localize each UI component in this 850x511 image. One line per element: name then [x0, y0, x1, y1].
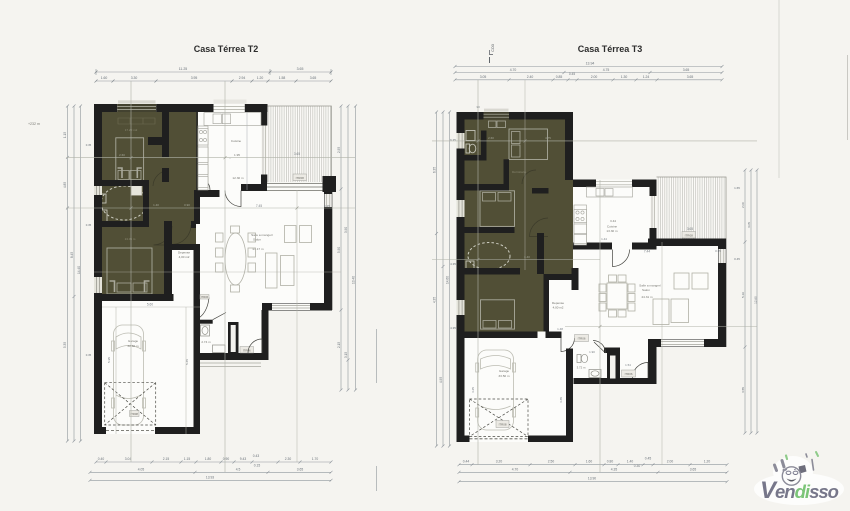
svg-text:13.90: 13.90	[588, 477, 596, 481]
svg-text:5.16: 5.16	[741, 292, 745, 298]
svg-text:0.40: 0.40	[98, 457, 105, 461]
svg-text:0.35: 0.35	[86, 223, 92, 227]
svg-text:ITR08: ITR08	[499, 423, 507, 427]
svg-text:1.65: 1.65	[734, 186, 740, 190]
svg-text:3.65: 3.65	[310, 76, 317, 80]
svg-text:ITR06: ITR06	[243, 349, 251, 353]
svg-text:44.31 m: 44.31 m	[641, 295, 653, 299]
svg-text:0.45: 0.45	[734, 257, 740, 261]
svg-text:1.20: 1.20	[257, 76, 264, 80]
svg-text:1.60: 1.60	[101, 76, 108, 80]
svg-text:3.04: 3.04	[125, 457, 132, 461]
svg-text:3.95: 3.95	[191, 76, 198, 80]
svg-text:14.40: 14.40	[77, 266, 81, 274]
svg-text:33.50 m: 33.50 m	[498, 374, 510, 378]
svg-text:Casa Térrea T2: Casa Térrea T2	[194, 44, 259, 54]
svg-text:5.60: 5.60	[147, 303, 153, 307]
svg-text:4.95: 4.95	[439, 377, 443, 383]
svg-text:4.35: 4.35	[559, 397, 563, 403]
svg-text:1.20: 1.20	[704, 460, 711, 464]
svg-text:6.35: 6.35	[433, 167, 437, 173]
svg-text:3.65: 3.65	[687, 227, 693, 231]
svg-text:Cuisine: Cuisine	[607, 225, 618, 229]
svg-text:4.05: 4.05	[138, 467, 145, 471]
svg-text:5.45: 5.45	[185, 359, 189, 365]
svg-text:0.15: 0.15	[254, 464, 261, 468]
svg-text:Garage: Garage	[128, 339, 139, 343]
svg-text:ITR08: ITR08	[131, 412, 139, 416]
svg-text:4,00 m2: 4,00 m2	[553, 306, 564, 310]
svg-text:0.44: 0.44	[463, 460, 470, 464]
svg-text:4.70: 4.70	[510, 68, 517, 72]
svg-text:0.35: 0.35	[86, 353, 92, 357]
svg-text:3.30: 3.30	[131, 76, 138, 80]
svg-text:0.45: 0.45	[645, 457, 652, 461]
svg-text:+232 m: +232 m	[28, 122, 40, 126]
svg-text:2.00: 2.00	[591, 75, 598, 79]
svg-text:Garage: Garage	[499, 369, 510, 373]
svg-text:3.55: 3.55	[741, 387, 745, 393]
svg-text:Salle a manger/: Salle a manger/	[251, 233, 273, 237]
svg-text:1.54: 1.54	[625, 363, 631, 367]
svg-text:Depense: Depense	[552, 301, 564, 305]
svg-text:3.65: 3.65	[294, 152, 300, 156]
svg-text:12.30 m: 12.30 m	[232, 176, 244, 180]
svg-text:4.85: 4.85	[63, 182, 67, 188]
svg-text:2.40: 2.40	[527, 75, 534, 79]
svg-text:1.58: 1.58	[279, 76, 286, 80]
svg-text:4.75: 4.75	[603, 68, 610, 72]
svg-text:8.45: 8.45	[70, 252, 74, 258]
svg-text:9.43: 9.43	[240, 457, 247, 461]
svg-text:2.60: 2.60	[488, 136, 494, 140]
svg-text:13.94: 13.94	[586, 62, 595, 66]
svg-text:0.35: 0.35	[715, 249, 721, 253]
svg-text:Casa Térrea T3: Casa Térrea T3	[578, 44, 643, 54]
svg-text:6.35: 6.35	[450, 138, 456, 142]
svg-text:0.43: 0.43	[253, 454, 260, 458]
svg-text:4.25: 4.25	[471, 387, 475, 393]
svg-text:ITR08: ITR08	[685, 234, 694, 238]
svg-text:Vendisso: Vendisso	[760, 477, 839, 504]
svg-text:2.74 m: 2.74 m	[201, 340, 211, 344]
svg-text:3.90: 3.90	[344, 227, 348, 233]
svg-text:4.5: 4.5	[236, 467, 241, 471]
svg-text:ITR06: ITR06	[625, 372, 633, 376]
svg-text:1.15: 1.15	[184, 457, 191, 461]
svg-text:1.24: 1.24	[643, 75, 650, 79]
svg-text:3.72 m: 3.72 m	[577, 366, 586, 370]
svg-text:2.95: 2.95	[337, 147, 341, 153]
svg-text:Dormitorio: Dormitorio	[512, 170, 526, 174]
svg-text:1.30: 1.30	[621, 75, 628, 79]
svg-text:1.80: 1.80	[205, 457, 212, 461]
svg-text:5.35: 5.35	[63, 342, 67, 348]
svg-text:Salon: Salon	[642, 288, 650, 292]
svg-text:3.15: 3.15	[344, 352, 348, 358]
svg-text:0.90: 0.90	[184, 203, 190, 207]
svg-text:2.50: 2.50	[548, 460, 555, 464]
svg-text:3.65: 3.65	[297, 67, 304, 71]
svg-text:0.35: 0.35	[86, 143, 92, 147]
svg-text:Depense: Depense	[178, 251, 190, 255]
svg-text:3.65: 3.65	[297, 467, 304, 471]
svg-text:4.75: 4.75	[545, 136, 551, 140]
svg-text:1.70: 1.70	[312, 457, 319, 461]
svg-text:Salon: Salon	[253, 238, 261, 242]
svg-text:13.05 m: 13.05 m	[125, 237, 136, 241]
svg-text:ITR06: ITR06	[201, 295, 209, 299]
svg-text:32.60 m: 32.60 m	[127, 344, 139, 348]
svg-text:1.48: 1.48	[557, 327, 563, 331]
svg-text:4.35: 4.35	[450, 326, 456, 330]
svg-text:2.15: 2.15	[163, 457, 170, 461]
svg-text:2.30: 2.30	[285, 457, 292, 461]
svg-text:2.00: 2.00	[667, 460, 674, 464]
svg-text:1.90: 1.90	[589, 350, 595, 354]
svg-text:4,00 m2: 4,00 m2	[179, 255, 190, 259]
svg-text:3.65: 3.65	[687, 75, 694, 79]
svg-text:3.05: 3.05	[480, 75, 487, 79]
svg-text:3.44: 3.44	[610, 219, 616, 223]
svg-text:4.35: 4.35	[450, 262, 456, 266]
svg-text:2.94: 2.94	[239, 76, 246, 80]
svg-text:CO3: CO3	[491, 44, 495, 52]
svg-text:1.95: 1.95	[234, 153, 240, 157]
svg-text:7.45: 7.45	[256, 204, 262, 208]
svg-text:5.95: 5.95	[107, 357, 111, 363]
svg-text:1.15: 1.15	[63, 132, 67, 138]
svg-text:2.00: 2.00	[741, 202, 745, 208]
svg-text:7.44: 7.44	[644, 250, 650, 254]
svg-text:5.90: 5.90	[337, 247, 341, 253]
svg-text:0.85: 0.85	[556, 75, 563, 79]
svg-text:0.30: 0.30	[634, 464, 641, 468]
svg-text:3.05: 3.05	[747, 222, 751, 228]
svg-text:0.90: 0.90	[223, 457, 230, 461]
svg-text:3.65: 3.65	[683, 68, 690, 72]
svg-text:4.70: 4.70	[512, 467, 519, 471]
svg-text:0.45: 0.45	[569, 72, 575, 76]
svg-text:Salle a manger/: Salle a manger/	[639, 284, 661, 288]
svg-text:4.35: 4.35	[433, 297, 437, 303]
svg-text:Cuisine: Cuisine	[231, 139, 242, 143]
svg-text:1.40: 1.40	[153, 203, 159, 207]
svg-text:4.35: 4.35	[611, 467, 618, 471]
svg-text:ITR06: ITR06	[578, 337, 586, 341]
svg-text:13.30 m: 13.30 m	[606, 229, 618, 233]
svg-text:12.60: 12.60	[754, 296, 758, 304]
svg-text:2.60: 2.60	[119, 153, 125, 157]
svg-text:2.15: 2.15	[337, 342, 341, 348]
svg-text:13.93: 13.93	[206, 475, 214, 479]
svg-text:13.40: 13.40	[352, 276, 356, 284]
svg-text:11.25: 11.25	[179, 67, 188, 71]
svg-text:ITR08: ITR08	[296, 176, 305, 180]
svg-text:1.44: 1.44	[601, 237, 607, 241]
svg-text:1.60: 1.60	[586, 460, 593, 464]
svg-text:3.20: 3.20	[496, 460, 503, 464]
svg-text:1.40: 1.40	[627, 460, 634, 464]
svg-text:0.80: 0.80	[607, 460, 614, 464]
svg-text:3.65: 3.65	[690, 467, 697, 471]
svg-text:0.35: 0.35	[324, 204, 330, 208]
svg-text:14.60: 14.60	[446, 276, 450, 284]
